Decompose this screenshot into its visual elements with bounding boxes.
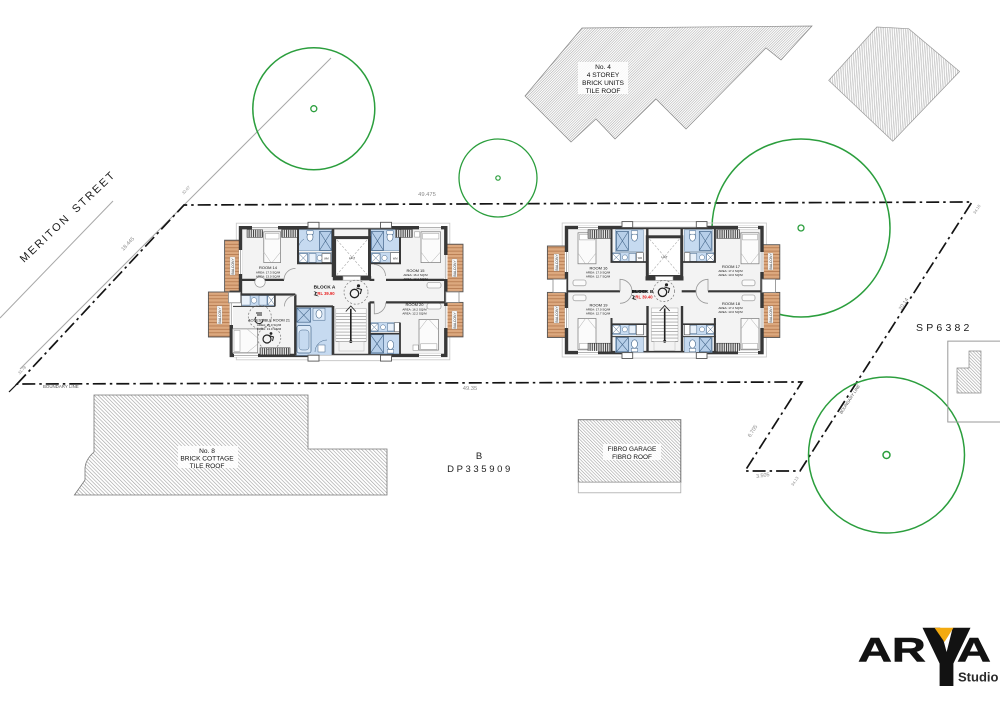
svg-text:RL 39.90: RL 39.90 <box>317 291 335 296</box>
svg-text:4 STOREY: 4 STOREY <box>587 72 620 79</box>
svg-text:AR: AR <box>858 631 926 669</box>
svg-text:BRICK COTTAGE: BRICK COTTAGE <box>180 456 234 463</box>
svg-text:AREA: 12.2 SQ/M: AREA: 12.2 SQ/M <box>403 277 428 281</box>
svg-text:BALCONY: BALCONY <box>453 312 457 329</box>
svg-text:WM: WM <box>393 257 398 261</box>
svg-text:Studio: Studio <box>958 670 998 685</box>
svg-text:49.35: 49.35 <box>463 386 478 392</box>
svg-text:BALCONY: BALCONY <box>769 306 773 323</box>
svg-text:TILE ROOF: TILE ROOF <box>586 88 621 95</box>
svg-text:SP6382: SP6382 <box>916 322 973 334</box>
svg-text:AREA: 13.0 SQ/M: AREA: 13.0 SQ/M <box>256 274 281 278</box>
svg-text:LIFT: LIFT <box>661 255 667 259</box>
svg-text:BALCONY: BALCONY <box>555 306 559 323</box>
svg-text:AREA: 13.0 SQ/M: AREA: 13.0 SQ/M <box>257 327 282 331</box>
svg-text:AREA: 13.0 SQ/M: AREA: 13.0 SQ/M <box>718 273 743 277</box>
svg-text:B: B <box>476 451 482 462</box>
svg-text:ROOM 19: ROOM 19 <box>589 302 608 307</box>
svg-text:ROOM 18: ROOM 18 <box>722 301 741 306</box>
svg-text:ROOM 15: ROOM 15 <box>406 268 425 273</box>
svg-text:BLOCK A: BLOCK A <box>314 285 336 291</box>
svg-text:ROOM 20: ROOM 20 <box>405 302 424 307</box>
svg-text:BALCONY: BALCONY <box>218 307 222 324</box>
svg-text:DP335909: DP335909 <box>447 464 513 475</box>
svg-text:ACCESSIBLE ROOM 21: ACCESSIBLE ROOM 21 <box>248 319 290 323</box>
svg-text:RL 39.40: RL 39.40 <box>635 295 653 300</box>
svg-text:AREA: 13.0 SQ/M: AREA: 13.0 SQ/M <box>718 310 743 314</box>
svg-text:BALCONY: BALCONY <box>555 254 559 271</box>
svg-text:A: A <box>957 631 991 669</box>
svg-text:No. 8: No. 8 <box>199 448 215 455</box>
svg-text:FIBRO ROOF: FIBRO ROOF <box>612 454 652 461</box>
svg-text:49.475: 49.475 <box>418 192 436 198</box>
svg-text:ROOM 16: ROOM 16 <box>589 265 608 270</box>
svg-text:TILE ROOF: TILE ROOF <box>190 463 225 470</box>
svg-text:ROOM 14: ROOM 14 <box>259 265 278 270</box>
svg-text:BRICK UNITS: BRICK UNITS <box>582 80 624 87</box>
svg-text:WM: WM <box>638 257 642 260</box>
svg-text:BALCONY: BALCONY <box>453 260 457 277</box>
svg-text:BALCONY: BALCONY <box>231 258 235 275</box>
svg-text:ROOM 17: ROOM 17 <box>722 264 741 269</box>
svg-text:BALCONY: BALCONY <box>769 253 773 270</box>
svg-text:AREA: 12.2 SQ/M: AREA: 12.2 SQ/M <box>402 311 427 315</box>
svg-text:LIFT: LIFT <box>349 256 355 260</box>
svg-text:WM: WM <box>324 256 329 260</box>
svg-text:AREA: 12.7 SQ/M: AREA: 12.7 SQ/M <box>586 312 611 316</box>
svg-text:FIBRO GARAGE: FIBRO GARAGE <box>608 446 657 453</box>
svg-text:AREA: 12.7 SQ/M: AREA: 12.7 SQ/M <box>586 275 611 279</box>
svg-text:BOUNDARY LINE: BOUNDARY LINE <box>43 384 79 389</box>
svg-text:No. 4: No. 4 <box>595 64 611 71</box>
